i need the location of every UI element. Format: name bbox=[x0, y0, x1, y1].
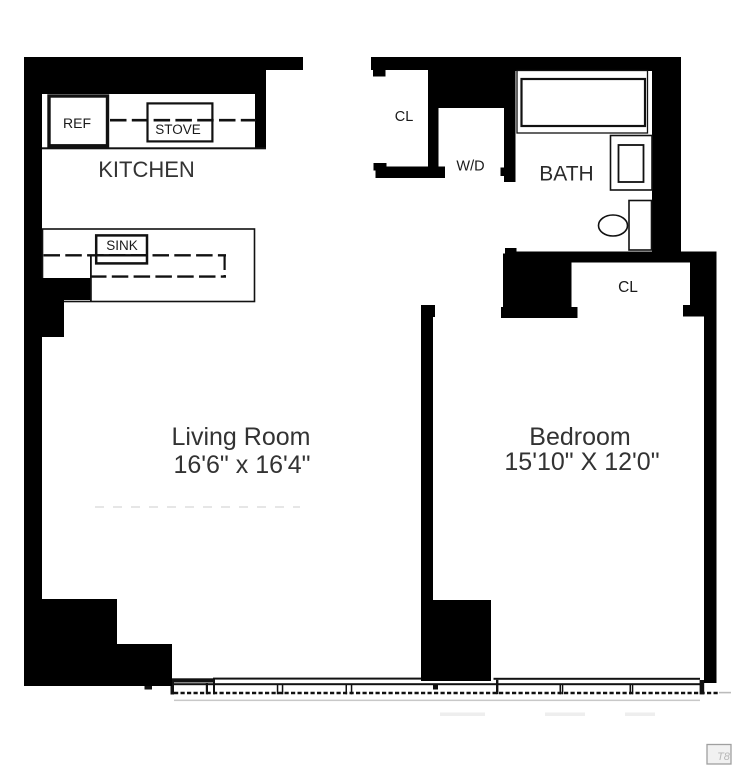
svg-text:REF: REF bbox=[63, 115, 91, 131]
svg-text:T8: T8 bbox=[717, 751, 731, 763]
svg-text:KITCHEN: KITCHEN bbox=[98, 157, 195, 182]
svg-text:SINK: SINK bbox=[106, 238, 138, 253]
svg-text:CL: CL bbox=[395, 109, 414, 125]
svg-text:BATH: BATH bbox=[539, 163, 593, 186]
svg-text:Living Room: Living Room bbox=[172, 423, 311, 451]
svg-text:W/D: W/D bbox=[456, 159, 484, 175]
svg-text:Bedroom: Bedroom bbox=[529, 423, 630, 451]
svg-text:CL: CL bbox=[618, 279, 638, 296]
svg-text:16'6" x 16'4": 16'6" x 16'4" bbox=[173, 451, 310, 479]
svg-text:STOVE: STOVE bbox=[155, 122, 201, 137]
svg-text:15'10" X 12'0": 15'10" X 12'0" bbox=[504, 448, 659, 476]
